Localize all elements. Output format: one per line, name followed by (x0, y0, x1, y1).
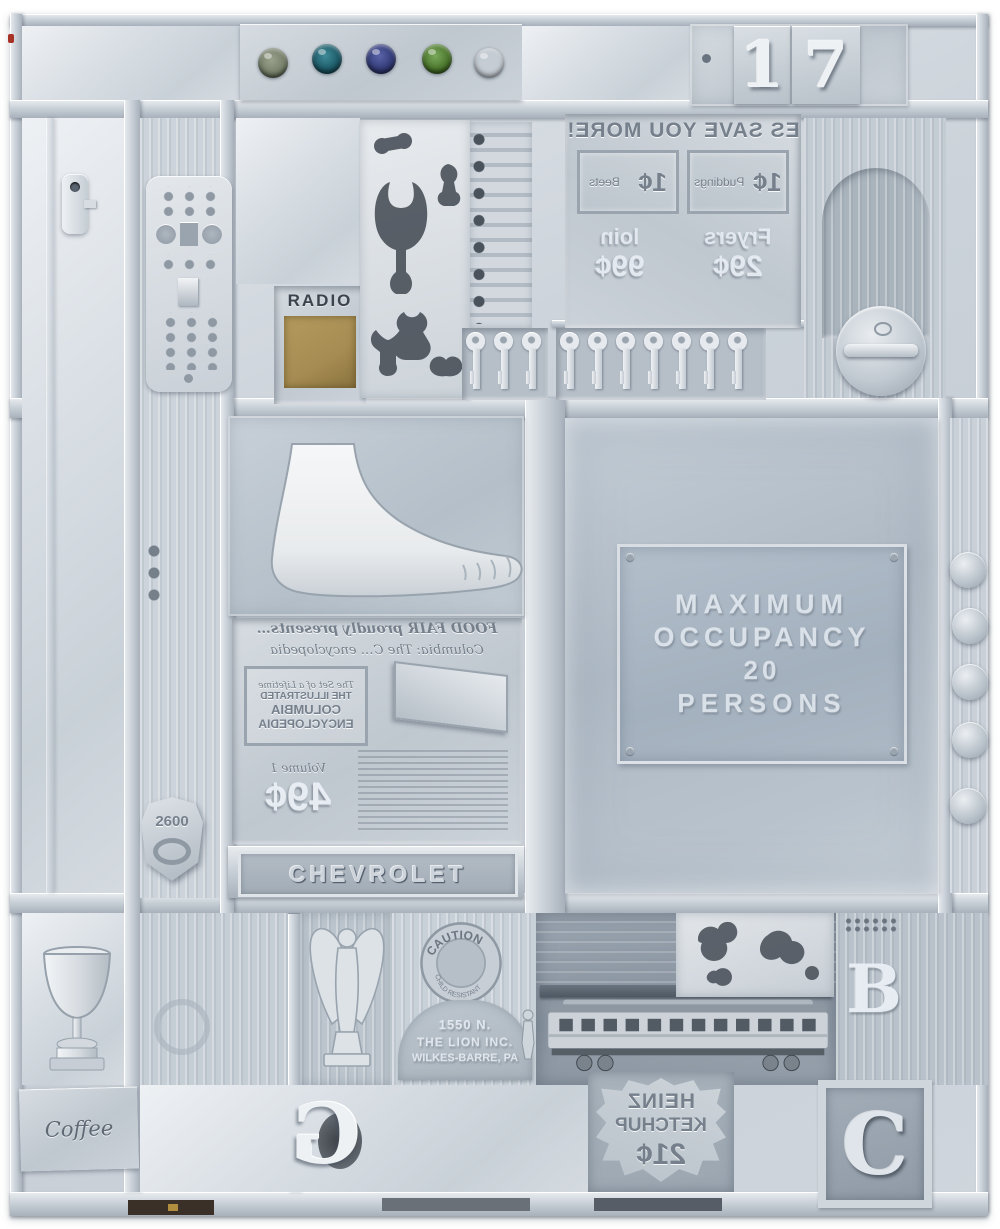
dark-chip-2 (382, 1198, 530, 1211)
dark-chip-3 (594, 1198, 722, 1211)
coupon-label: Puddings (694, 175, 744, 189)
occupancy-line-3: 20 (744, 655, 781, 686)
letter-c: C (842, 1095, 909, 1194)
grocery-coupon-2: 1¢ Beets (577, 150, 679, 214)
round-knob-icon (952, 664, 988, 700)
figurine-head (338, 929, 356, 947)
round-knob-icon (950, 788, 986, 824)
remote-dpad-left (156, 224, 176, 244)
remote-dpad-right (202, 224, 222, 244)
heinz-line-1: HEINZ (627, 1090, 695, 1114)
key-tray-right (556, 328, 766, 400)
remote-mid-buttons (154, 254, 224, 272)
dotted-detail-strip (140, 540, 168, 606)
coupon-price: 1¢ (638, 167, 667, 198)
badge-oval-emblem (153, 838, 191, 865)
occupancy-outer-panel: MAXIMUM OCCUPANCY 20 PERSONS (565, 418, 938, 893)
glass-gem-3 (366, 44, 396, 74)
title-box-line: ENCYCLOPEDIA (258, 717, 353, 731)
heinz-plate: HEINZ KETCHUP 21¢ (588, 1072, 734, 1192)
puzzle-cutout-panel (676, 913, 834, 997)
item-price: 29¢ (713, 250, 763, 284)
rail-v1 (124, 100, 140, 1192)
occupancy-line-1: MAXIMUM (675, 589, 849, 620)
person-figurine-icon (520, 1009, 536, 1061)
gas-cap-handle (844, 344, 918, 357)
figurine-plinth (324, 1054, 370, 1066)
perforation-holes (472, 126, 486, 324)
letter-c-block: C (818, 1080, 932, 1208)
dot-grid-detail (844, 917, 900, 933)
lion-line-1: 1550 N. (439, 1017, 492, 1032)
stencil-cutout-shapes-icon (360, 120, 470, 398)
radio-label: RADIO (274, 286, 366, 316)
title-box-line: COLUMBIA (271, 702, 341, 717)
grocery-coupon-1: 1¢ Puddings (687, 150, 789, 214)
top-left-washed-panel (22, 26, 240, 100)
grocery-coupon-row: 1¢ Puddings 1¢ Beets (565, 150, 801, 214)
badge-shield-shape: 2600 (141, 797, 203, 881)
item-price: 99¢ (595, 250, 645, 284)
stencil-wishbone-shape (375, 182, 427, 294)
lion-line-2: THE LION INC. (417, 1035, 513, 1049)
occupancy-sign: MAXIMUM OCCUPANCY 20 PERSONS (617, 544, 907, 764)
figurine-body (336, 948, 358, 1032)
b-block-panel: B (836, 913, 988, 1085)
left-thin-batten (46, 118, 54, 893)
artwork-photo: 1 7 17 RADIO (0, 0, 1000, 1229)
remote-top-buttons (154, 186, 224, 216)
letter-g: G (290, 1087, 360, 1183)
screw-icon (890, 553, 898, 561)
coffee-label: Coffee (44, 1116, 113, 1142)
mannequin-foot-icon (244, 438, 534, 608)
remote-slider-button (178, 278, 198, 306)
number-plate-panel: 1 7 (690, 24, 908, 106)
gas-cap-detail (874, 322, 892, 336)
clip-wing (84, 200, 96, 208)
letter-c-holder: C (826, 1088, 924, 1200)
top-mid-washed-panel (522, 26, 690, 100)
stencil-wing-shape (430, 357, 463, 377)
heinz-starburst: HEINZ KETCHUP 21¢ (596, 1078, 726, 1184)
coupon-label: Beets (589, 175, 620, 189)
coupon-price: 1¢ (753, 167, 782, 198)
grocery-item-2: loin 99¢ (595, 224, 645, 284)
key-icon (521, 332, 543, 392)
coffee-plate: Coffee (19, 1086, 139, 1171)
encyclopedia-fine-print (358, 750, 508, 830)
encyclopedia-script-2: Columbia: The C… encyclopedia (232, 640, 522, 660)
lion-line-3: WILKES-BARRE, PA (412, 1052, 518, 1064)
round-knob-icon (950, 552, 986, 588)
encyclopedia-title-box: The Set of a Lifetime THE ILLUSTRATED CO… (244, 666, 368, 746)
shield-badge-icon: 2600 (141, 797, 203, 881)
winged-figurine-icon (302, 918, 392, 1084)
figurine-base (332, 1032, 362, 1054)
screw-icon (890, 747, 898, 755)
encyclopedia-book-illustration (378, 668, 508, 738)
dot-mark (702, 54, 711, 63)
loving-cup-trophy-icon (32, 942, 122, 1092)
remote-bottom-button (184, 374, 193, 383)
model-passenger-car-icon (544, 997, 832, 1079)
encyclopedia-price-block: Volume 1 49¢ (248, 750, 348, 830)
gold-chip (168, 1204, 178, 1211)
remote-number-pad (156, 312, 222, 370)
screw-icon (626, 747, 634, 755)
round-knob-icon (952, 722, 988, 758)
gem-strip (240, 24, 522, 100)
occupancy-text-block: MAXIMUM OCCUPANCY 20 PERSONS (620, 547, 904, 761)
digit-7-glyph: 7 (804, 28, 849, 103)
chevrolet-bar: CHEVROLET (228, 846, 524, 898)
glass-gem-4 (422, 44, 452, 74)
g-panel: G (140, 1085, 588, 1192)
key-icon (465, 332, 487, 392)
caution-cap-icon: CAUTION CHILD RESISTANT (418, 920, 504, 1006)
mid-bottom-panel-1 (140, 913, 288, 1085)
remote-dpad (156, 220, 222, 250)
glass-gem-2 (312, 44, 342, 74)
puzzle-cutout-shapes-icon (676, 913, 832, 997)
encyclopedia-mirrored-content: FOOD FAIR proudly presents… Columbia: Th… (232, 618, 522, 844)
title-box-line: THE ILLUSTRATED (260, 691, 351, 702)
encyclopedia-script-1: FOOD FAIR proudly presents… (232, 618, 522, 640)
item-name: Fryers (704, 224, 771, 250)
rail-left-edge (10, 14, 22, 1214)
price-value: 49¢ (265, 775, 332, 820)
encyclopedia-ad-plate: FOOD FAIR proudly presents… Columbia: Th… (232, 618, 522, 844)
glass-gem-5 (474, 48, 504, 78)
occupancy-line-2: OCCUPANCY (653, 622, 870, 653)
key-tray-left (462, 328, 548, 400)
train-bogies (577, 1055, 800, 1070)
foot-panel (228, 416, 524, 616)
key-icon (643, 332, 665, 392)
radio-brass-area (284, 316, 356, 388)
item-name: loin (600, 224, 639, 250)
tv-remote-icon (146, 176, 232, 392)
letter-b-block: B (836, 939, 912, 1039)
badge-number: 2600 (141, 797, 203, 830)
letter-b: B (846, 950, 902, 1028)
stencil-bone-shape (374, 133, 412, 154)
chevrolet-label: CHEVROLET (289, 861, 467, 888)
key-icon (559, 332, 581, 392)
heinz-price: 21¢ (636, 1138, 686, 1172)
key-icon (493, 332, 515, 392)
book-icon (394, 661, 508, 733)
occupancy-line-4: PERSONS (677, 688, 846, 719)
digit-7: 7 (792, 26, 860, 104)
chevrolet-emblem: CHEVROLET (238, 851, 518, 897)
grocery-headline: ES SAVE YOU MORE! (565, 114, 801, 148)
radio-plate: RADIO (274, 286, 366, 404)
stencil-small-shape-1 (438, 164, 461, 206)
grocery-items-row: Fryers 29¢ loin 99¢ (565, 224, 801, 284)
circle-detail (154, 999, 210, 1055)
heinz-line-2: KETCHUP (615, 1115, 707, 1137)
remote-dpad-center (180, 222, 198, 246)
title-box-line: The Set of a Lifetime (258, 681, 354, 691)
perforated-strip (470, 122, 532, 328)
left-column-panel (22, 118, 124, 893)
clip-hole (70, 182, 80, 192)
price-note: Volume 1 (270, 761, 326, 775)
key-icon (671, 332, 693, 392)
grocery-ad-plate: ES SAVE YOU MORE! 1¢ Puddings 1¢ Beets F… (565, 114, 801, 328)
key-icon (587, 332, 609, 392)
grocery-item-1: Fryers 29¢ (704, 224, 771, 284)
screw-icon (626, 553, 634, 561)
metal-clip-icon (62, 174, 88, 234)
digit-1-glyph: 1 (740, 28, 785, 103)
glass-gem-1 (258, 48, 288, 78)
key-icon (615, 332, 637, 392)
key-icon (699, 332, 721, 392)
panel-above-radio (236, 118, 360, 284)
key-icon (727, 332, 749, 392)
red-paint-speck (8, 34, 14, 43)
round-knob-icon (952, 608, 988, 644)
round-gas-cap-icon (836, 306, 926, 396)
die-cut-stencil-panel (360, 120, 470, 398)
digit-1: 1 (734, 26, 790, 104)
